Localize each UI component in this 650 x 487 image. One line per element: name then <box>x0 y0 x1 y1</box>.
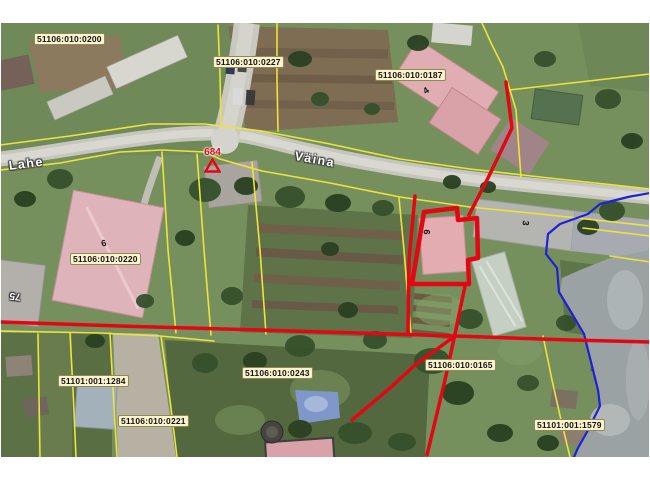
building <box>431 23 473 46</box>
building-selected <box>419 216 467 275</box>
shed <box>23 396 49 417</box>
car <box>237 57 247 73</box>
map-viewport[interactable] <box>1 23 649 457</box>
cadastral-map-window: 684 51106:010:020051106:010:022751106:01… <box>0 0 650 487</box>
aerial-photo <box>1 23 649 457</box>
building <box>74 377 117 430</box>
car <box>232 88 243 106</box>
building-75 <box>1 259 46 327</box>
shed <box>5 355 32 377</box>
car <box>225 58 235 75</box>
car <box>245 90 255 106</box>
building-green-roof <box>531 89 583 125</box>
